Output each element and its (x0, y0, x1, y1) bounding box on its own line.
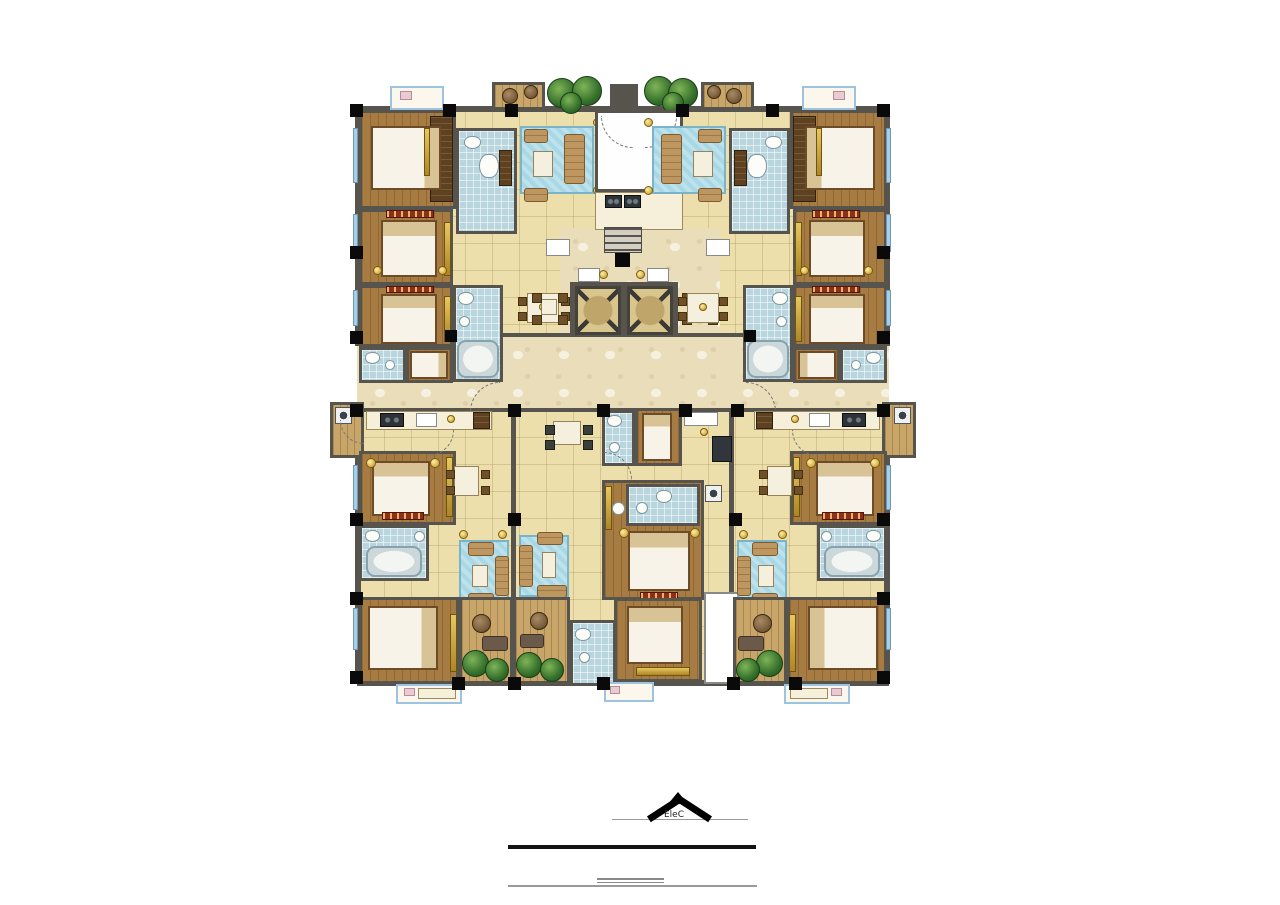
toilet-bath-suite-c (656, 490, 672, 503)
sofa-living-bl-top (468, 542, 494, 556)
plant-terrace-br-1 (756, 650, 783, 677)
lobby-chair-left-3 (532, 315, 542, 325)
sofa-living-c-left (519, 545, 533, 587)
cabinet-core-left (546, 239, 570, 256)
column (766, 104, 779, 117)
window-right-1 (886, 128, 891, 183)
column (350, 104, 363, 117)
basin-counter-right (647, 268, 669, 282)
lamp-bedroom-2-tl-2 (438, 266, 447, 275)
lamp-bedroom-2-tr-2 (864, 266, 873, 275)
column (789, 677, 802, 690)
basin-dot-right (636, 270, 645, 279)
chair-dining-br-4 (794, 486, 803, 495)
plaque-bedroom-3-tr (795, 296, 802, 342)
pouf-porch-right-1 (707, 85, 721, 99)
column (731, 404, 744, 417)
bed-bedroom-a-br (816, 461, 874, 516)
centerpiece-dining-tr (699, 303, 707, 311)
pouf-porch-left-1 (502, 88, 518, 104)
dot-living-br-2 (739, 530, 748, 539)
sofa-living-br-top (752, 542, 778, 556)
sink-corridor-right (851, 360, 861, 370)
side-dot-living-tr-2 (644, 186, 653, 195)
bay-decor-top-right (833, 91, 845, 100)
chair-dining-tl-1 (518, 297, 527, 306)
sink-bath-2-tr (776, 316, 787, 327)
dining-table-bl (454, 466, 479, 496)
column (505, 104, 518, 117)
bay-decor-bottom-left (404, 688, 415, 696)
bay-decor-top-left (400, 91, 412, 100)
pouf-porch-left-2 (524, 85, 538, 99)
cushion-terrace-br (738, 636, 764, 651)
lamp-bedroom-2-tr-1 (800, 266, 809, 275)
tub-bath-a-br (824, 546, 880, 577)
window-right-3 (886, 290, 891, 326)
bath-corridor-left (359, 347, 406, 383)
lamp-bedroom-a-br-2 (870, 458, 880, 468)
pouf-terrace-br (753, 614, 772, 633)
sink-bath-c1 (609, 442, 620, 453)
runner-bedroom-2-tr (812, 210, 860, 218)
north-symbol-label: EleC (664, 810, 684, 820)
armchair-living-c (537, 532, 563, 545)
bed-bedroom-b-bl (368, 606, 438, 670)
bay-window-top-left (390, 86, 444, 110)
bed-bedroom-c2 (627, 606, 683, 664)
column (597, 404, 610, 417)
column (679, 404, 692, 417)
stair-landing (615, 253, 630, 267)
bed-suite-c (628, 531, 690, 591)
toilet-bath-a-br (866, 530, 881, 542)
cushion-terrace-bl (482, 636, 508, 651)
sink-bath-master-tr (747, 154, 767, 178)
wall-core-mid (621, 282, 627, 336)
title-line-thick (508, 845, 756, 849)
column (744, 330, 756, 342)
bed-storeroom-right (798, 351, 836, 379)
bay-bench-bottom-left (418, 688, 456, 699)
stairs-core (604, 227, 642, 253)
column (508, 513, 521, 526)
column (877, 404, 890, 417)
sofa-living-tr (661, 134, 682, 184)
cooktop-center-2 (624, 195, 641, 208)
coffee-table-living-tr (693, 151, 713, 177)
basin-counter-left (578, 268, 600, 282)
kitchen-sink-br (809, 413, 830, 427)
tub-bath-a-bl (366, 546, 422, 577)
column (350, 671, 363, 684)
column (443, 104, 456, 117)
column (877, 104, 890, 117)
side-dot-living-tr-1 (644, 118, 653, 127)
title-line-short-b (597, 882, 664, 883)
armchair-living-tl-2 (524, 188, 548, 202)
bay-decor-bottom-center (610, 686, 620, 694)
runner-bedroom-2-tl (386, 210, 434, 218)
kitchen-cabinet-bl (473, 412, 490, 429)
wall-core-right (673, 282, 678, 336)
column (877, 592, 890, 605)
dining-table-c (553, 421, 581, 445)
bed-bedroom-a-bl (372, 461, 430, 516)
entry-porch-left (492, 82, 545, 110)
bed-bedroom-2-tl (381, 220, 437, 277)
column (350, 592, 363, 605)
plaque-master-tr (816, 128, 822, 176)
bay-decor-bottom-right (831, 688, 842, 696)
runner-bedroom-a-bl (382, 512, 424, 520)
plant-terrace-c-2 (540, 658, 564, 682)
column (877, 513, 890, 526)
elevator-left (575, 286, 621, 335)
column (508, 677, 521, 690)
toilet-corridor-left (365, 352, 380, 364)
plaque-master-tl (424, 128, 430, 176)
cabinet-core-right (706, 239, 730, 256)
chair-dining-bl-2 (446, 486, 455, 495)
column (877, 246, 890, 259)
armchair-living-tr-1 (698, 129, 722, 143)
kitchen-c-appliance (712, 436, 732, 462)
cooktop-bl (380, 413, 404, 427)
chair-dining-c-1 (545, 425, 555, 435)
dining-table-br (767, 466, 792, 496)
chair-dining-tr-1 (678, 297, 687, 306)
chair-dining-tr-3 (719, 297, 728, 306)
armchair-living-tr-2 (698, 188, 722, 202)
column (350, 331, 363, 344)
toilet-bath-c2 (575, 628, 591, 641)
lamp-bedroom-a-br-1 (806, 458, 816, 468)
bed-storeroom-left (410, 351, 448, 379)
title-line-short-a (597, 878, 664, 880)
lamp-suite-c-2 (690, 528, 700, 538)
bed-bedroom-small-c (642, 413, 672, 461)
window-right-5 (886, 608, 891, 650)
kitchen-sink-bl (416, 413, 437, 427)
washer-balcony-right (894, 407, 911, 424)
runner-bedroom-a-br (822, 512, 864, 520)
toilet-corridor-right (866, 352, 881, 364)
sofa-living-br-left (737, 556, 751, 596)
tub-bath-2-tr (747, 340, 789, 378)
column (350, 246, 363, 259)
toilet-bath-2-tl (458, 292, 474, 305)
tub-bath-2-tl (457, 340, 499, 378)
lamp-bedroom-a-bl-2 (430, 458, 440, 468)
wall-core-left (570, 282, 575, 336)
elevator-right (627, 286, 673, 335)
coffee-table-living-br (758, 565, 774, 587)
sink-bath-a-bl (414, 531, 425, 542)
runner-bedroom-3-tr (812, 286, 860, 293)
kitchen-cabinet-br (756, 412, 773, 429)
toilet-bath-2-tr (772, 292, 788, 305)
window-left-5 (353, 608, 358, 650)
title-line-long (508, 885, 757, 887)
dot-living-bl-1 (459, 530, 468, 539)
pouf-terrace-c (530, 612, 548, 630)
vanity-bath-master-tl (499, 150, 512, 186)
sink-bath-c2 (579, 652, 590, 663)
entry-block (610, 84, 638, 110)
lobby-chair-left-1 (532, 293, 542, 303)
pouf-porch-right-2 (726, 88, 742, 104)
sofa-living-tl (564, 134, 585, 184)
plant-terrace-bl-2 (485, 658, 509, 682)
chair-dining-bl-3 (481, 470, 490, 479)
sink-corridor-left (385, 360, 395, 370)
bed-bedroom-3-tl (381, 294, 437, 344)
lobby-chair-left-2 (558, 293, 568, 303)
sink-bath-suite-c (636, 502, 648, 514)
chair-dining-br-1 (759, 470, 768, 479)
chair-dining-tr-4 (719, 312, 728, 321)
toilet-bath-a-bl (365, 530, 380, 542)
coffee-table-living-c (542, 552, 556, 578)
plaque-suite-c (605, 486, 612, 530)
column (877, 331, 890, 344)
chair-dining-bl-1 (446, 470, 455, 479)
floor-plan: EleC (0, 0, 1280, 905)
coffee-table-living-bl (472, 565, 488, 587)
column (597, 677, 610, 690)
lobby-table-left (541, 299, 557, 315)
basin-dot-left (599, 270, 608, 279)
column (508, 404, 521, 417)
column (877, 671, 890, 684)
chair-dining-bl-4 (481, 486, 490, 495)
column (676, 104, 689, 117)
vanity-bath-master-tr (734, 150, 747, 186)
chair-dining-br-2 (759, 486, 768, 495)
plaque-bedroom-b-bl (450, 614, 457, 672)
plaque-bedroom-b-br (789, 614, 796, 672)
pouf-terrace-bl (472, 614, 491, 633)
cooktop-center-1 (605, 195, 622, 208)
chair-dining-tl-2 (518, 312, 527, 321)
plaque-bedroom-c2 (636, 667, 690, 676)
kitchen-dot-bl (447, 415, 455, 423)
chair-dining-tr-2 (678, 312, 687, 321)
lamp-bedroom-2-tl-1 (373, 266, 382, 275)
chair-dining-br-3 (794, 470, 803, 479)
coffee-table-living-tl (533, 151, 553, 177)
sink-bath-master-tl (479, 154, 499, 178)
column (452, 677, 465, 690)
column (729, 513, 742, 526)
column (350, 513, 363, 526)
sink-bath-a-br (821, 531, 832, 542)
sink-bath-2-tl (459, 316, 470, 327)
bed-master-tl (371, 126, 441, 190)
plant-terrace-c-1 (516, 652, 542, 678)
planter-left-3 (560, 92, 582, 114)
window-left-4 (353, 465, 358, 510)
chair-dining-c-3 (583, 425, 593, 435)
column (727, 677, 740, 690)
toilet-bath-master-tr (765, 136, 782, 149)
chair-dining-c-2 (545, 440, 555, 450)
sofa-living-bl-right (495, 556, 509, 596)
lobby-chair-left-4 (558, 315, 568, 325)
bay-window-top-right (802, 86, 856, 110)
chair-dining-c-4 (583, 440, 593, 450)
dot-living-br-1 (778, 530, 787, 539)
window-left-1 (353, 128, 358, 183)
bed-bedroom-3-tr (809, 294, 865, 344)
kitchen-dot-br (791, 415, 799, 423)
column (350, 404, 363, 417)
kitchen-c-dot (700, 428, 708, 436)
gable-apex (668, 792, 688, 804)
bath-corridor-right (840, 347, 887, 383)
armchair-living-tl-1 (524, 129, 548, 143)
bed-bedroom-b-br (808, 606, 878, 670)
toilet-bath-master-tl (464, 136, 481, 149)
lamp-bedroom-a-bl-1 (366, 458, 376, 468)
dot-living-bl-2 (498, 530, 507, 539)
cooktop-br (842, 413, 866, 427)
bed-bedroom-2-tr (809, 220, 865, 277)
window-left-3 (353, 290, 358, 326)
lamp-suite-c-1 (619, 528, 629, 538)
column (445, 330, 457, 342)
runner-bedroom-3-tl (386, 286, 434, 293)
cushion-terrace-c (520, 634, 544, 648)
window-right-4 (886, 465, 891, 510)
washer-nook-c (705, 485, 722, 502)
vanity-sink-suite-c (612, 502, 625, 515)
